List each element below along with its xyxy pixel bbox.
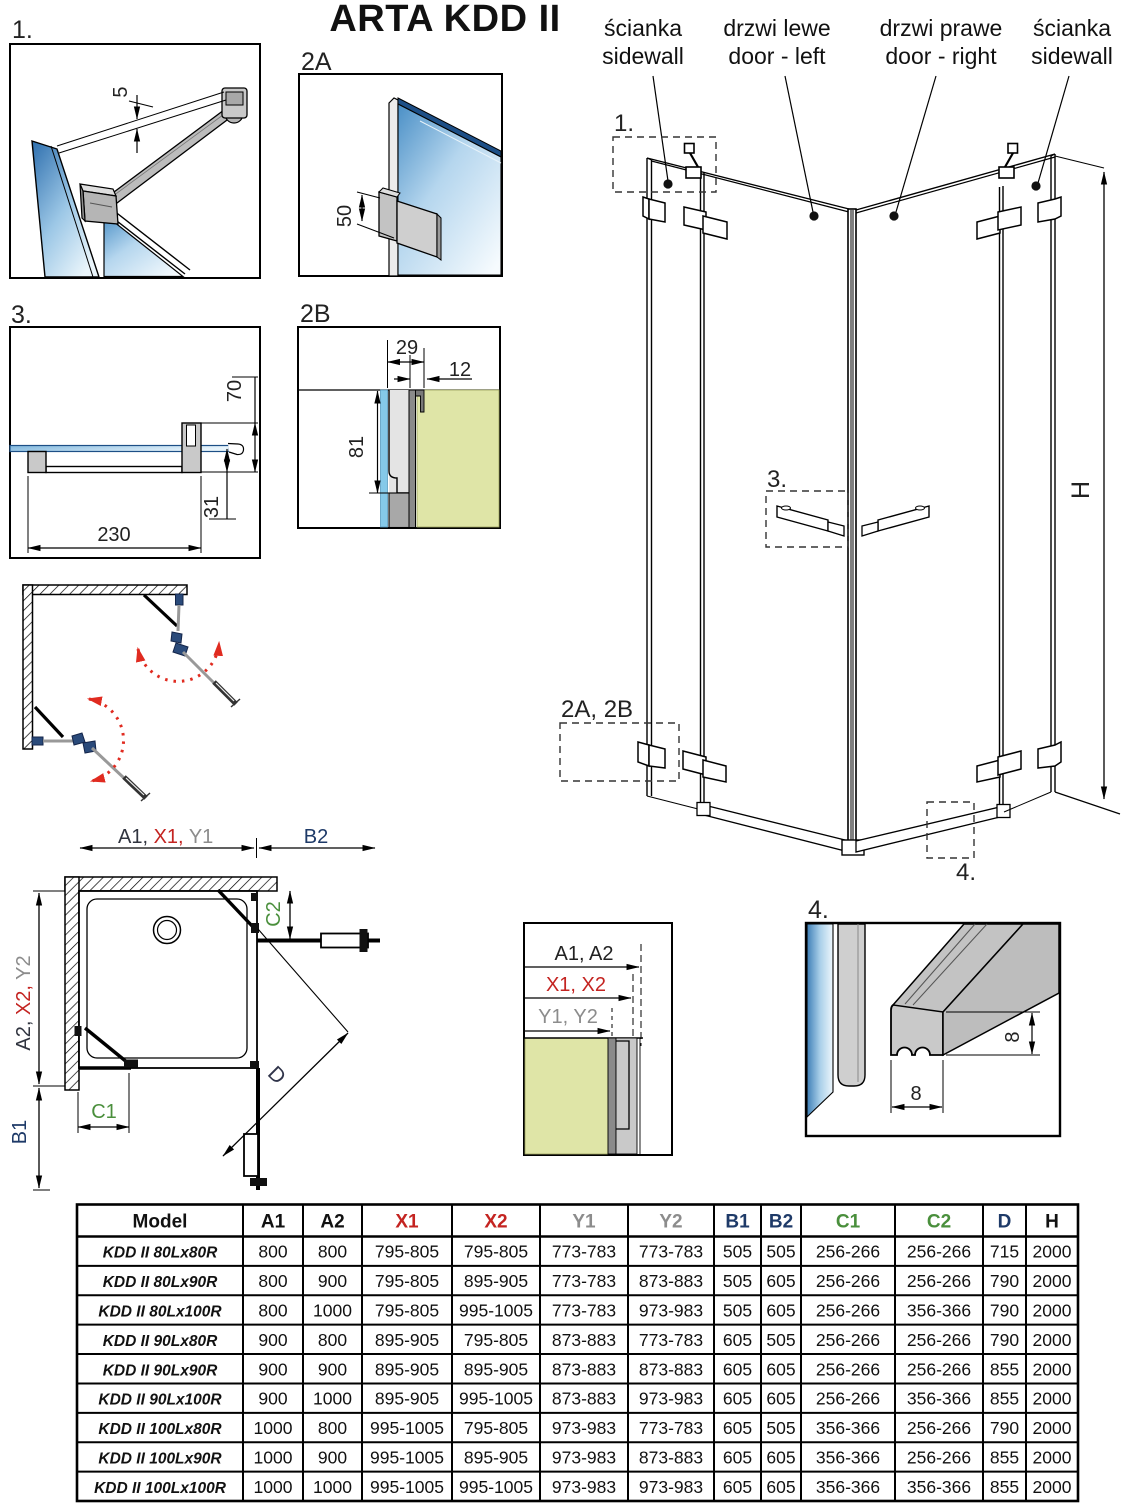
svg-text:1000: 1000 xyxy=(254,1477,293,1497)
svg-text:2A: 2A xyxy=(301,48,332,76)
svg-text:KDD II 80Lx100R: KDD II 80Lx100R xyxy=(98,1303,222,1320)
svg-text:Y1: Y1 xyxy=(572,1212,596,1233)
svg-text:973-983: 973-983 xyxy=(639,1300,703,1320)
svg-text:795-805: 795-805 xyxy=(375,1242,439,1262)
svg-text:sidewall: sidewall xyxy=(1031,43,1113,69)
svg-text:356-366: 356-366 xyxy=(816,1447,880,1467)
svg-text:81: 81 xyxy=(346,436,368,458)
svg-text:2000: 2000 xyxy=(1033,1359,1072,1379)
svg-text:H: H xyxy=(1045,1212,1059,1233)
svg-text:256-266: 256-266 xyxy=(816,1389,880,1409)
svg-text:H: H xyxy=(1067,481,1095,499)
svg-text:795-805: 795-805 xyxy=(375,1300,439,1320)
svg-text:X2: X2 xyxy=(484,1212,507,1233)
svg-text:B1: B1 xyxy=(9,1120,31,1144)
svg-text:KDD II 100Lx90R: KDD II 100Lx90R xyxy=(98,1450,222,1467)
svg-text:900: 900 xyxy=(258,1359,287,1379)
svg-text:605: 605 xyxy=(723,1359,752,1379)
svg-text:KDD II 100Lx80R: KDD II 100Lx80R xyxy=(98,1421,222,1438)
svg-text:drzwi lewe: drzwi lewe xyxy=(723,15,830,41)
svg-text:790: 790 xyxy=(990,1418,1019,1438)
svg-text:4.: 4. xyxy=(808,896,829,924)
svg-text:895-905: 895-905 xyxy=(375,1389,439,1409)
svg-text:873-883: 873-883 xyxy=(552,1389,616,1409)
svg-text:1000: 1000 xyxy=(313,1300,352,1320)
svg-text:8: 8 xyxy=(910,1083,921,1105)
svg-text:3.: 3. xyxy=(11,301,32,329)
svg-text:605: 605 xyxy=(723,1477,752,1497)
svg-text:795-805: 795-805 xyxy=(464,1330,528,1350)
svg-text:505: 505 xyxy=(723,1300,752,1320)
svg-text:256-266: 256-266 xyxy=(816,1359,880,1379)
svg-text:256-266: 256-266 xyxy=(816,1271,880,1291)
svg-text:356-366: 356-366 xyxy=(907,1477,971,1497)
svg-text:795-805: 795-805 xyxy=(464,1242,528,1262)
svg-text:2A, 2B: 2A, 2B xyxy=(561,696,633,723)
svg-text:ścianka: ścianka xyxy=(604,15,682,41)
svg-text:230: 230 xyxy=(97,524,130,546)
svg-text:256-266: 256-266 xyxy=(816,1242,880,1262)
svg-text:1.: 1. xyxy=(12,16,33,44)
svg-text:773-783: 773-783 xyxy=(639,1330,703,1350)
svg-text:256-266: 256-266 xyxy=(816,1300,880,1320)
svg-text:995-1005: 995-1005 xyxy=(370,1418,444,1438)
svg-text:2000: 2000 xyxy=(1033,1242,1072,1262)
svg-text:800: 800 xyxy=(318,1330,347,1350)
svg-text:800: 800 xyxy=(318,1418,347,1438)
svg-text:2000: 2000 xyxy=(1033,1271,1072,1291)
svg-text:995-1005: 995-1005 xyxy=(459,1389,533,1409)
svg-text:605: 605 xyxy=(766,1271,795,1291)
svg-text:B2: B2 xyxy=(304,826,328,848)
svg-text:995-1005: 995-1005 xyxy=(370,1447,444,1467)
svg-text:256-266: 256-266 xyxy=(907,1418,971,1438)
svg-text:790: 790 xyxy=(990,1271,1019,1291)
svg-text:773-783: 773-783 xyxy=(552,1300,616,1320)
svg-text:C2: C2 xyxy=(263,901,285,927)
svg-text:973-983: 973-983 xyxy=(552,1447,616,1467)
svg-text:895-905: 895-905 xyxy=(464,1359,528,1379)
svg-text:505: 505 xyxy=(766,1418,795,1438)
svg-text:8: 8 xyxy=(1002,1031,1024,1042)
svg-text:855: 855 xyxy=(990,1359,1019,1379)
svg-text:605: 605 xyxy=(723,1418,752,1438)
svg-text:B1: B1 xyxy=(725,1212,750,1233)
svg-text:795-805: 795-805 xyxy=(375,1271,439,1291)
svg-text:900: 900 xyxy=(258,1389,287,1409)
svg-text:256-266: 256-266 xyxy=(816,1330,880,1350)
svg-text:356-366: 356-366 xyxy=(816,1477,880,1497)
svg-text:800: 800 xyxy=(258,1242,287,1262)
svg-text:605: 605 xyxy=(723,1330,752,1350)
svg-text:Model: Model xyxy=(133,1212,188,1233)
svg-text:900: 900 xyxy=(258,1330,287,1350)
svg-text:Y2: Y2 xyxy=(659,1212,682,1233)
svg-text:D: D xyxy=(998,1212,1012,1233)
svg-text:505: 505 xyxy=(723,1242,752,1262)
svg-text:3.: 3. xyxy=(767,466,787,493)
svg-text:31: 31 xyxy=(201,496,223,518)
svg-text:2000: 2000 xyxy=(1033,1477,1072,1497)
svg-text:1000: 1000 xyxy=(254,1447,293,1467)
svg-text:A1: A1 xyxy=(261,1212,286,1233)
svg-text:790: 790 xyxy=(990,1300,1019,1320)
svg-text:A2: A2 xyxy=(320,1212,344,1233)
svg-text:C2: C2 xyxy=(927,1212,951,1233)
svg-text:790: 790 xyxy=(990,1330,1019,1350)
svg-text:900: 900 xyxy=(318,1359,347,1379)
svg-text:356-366: 356-366 xyxy=(816,1418,880,1438)
svg-text:773-783: 773-783 xyxy=(552,1271,616,1291)
svg-text:605: 605 xyxy=(766,1389,795,1409)
svg-text:1.: 1. xyxy=(614,110,634,137)
svg-text:973-983: 973-983 xyxy=(552,1418,616,1438)
svg-text:873-883: 873-883 xyxy=(639,1271,703,1291)
svg-text:855: 855 xyxy=(990,1477,1019,1497)
svg-text:800: 800 xyxy=(258,1300,287,1320)
svg-text:995-1005: 995-1005 xyxy=(370,1477,444,1497)
svg-text:C1: C1 xyxy=(91,1101,117,1123)
svg-text:C1: C1 xyxy=(836,1212,861,1233)
svg-text:873-883: 873-883 xyxy=(639,1447,703,1467)
svg-text:773-783: 773-783 xyxy=(639,1242,703,1262)
svg-text:KDD II 90Lx80R: KDD II 90Lx80R xyxy=(103,1333,218,1350)
svg-text:KDD II 80Lx90R: KDD II 80Lx90R xyxy=(103,1274,218,1291)
svg-text:sidewall: sidewall xyxy=(602,43,684,69)
svg-text:1000: 1000 xyxy=(254,1418,293,1438)
svg-text:973-983: 973-983 xyxy=(639,1477,703,1497)
svg-text:605: 605 xyxy=(766,1477,795,1497)
svg-text:605: 605 xyxy=(766,1359,795,1379)
svg-text:2000: 2000 xyxy=(1033,1418,1072,1438)
svg-text:2000: 2000 xyxy=(1033,1300,1072,1320)
svg-text:873-883: 873-883 xyxy=(552,1359,616,1379)
svg-text:873-883: 873-883 xyxy=(552,1330,616,1350)
svg-text:895-905: 895-905 xyxy=(464,1447,528,1467)
svg-text:2000: 2000 xyxy=(1033,1389,1072,1409)
svg-text:605: 605 xyxy=(723,1447,752,1467)
svg-text:KDD II 80Lx80R: KDD II 80Lx80R xyxy=(103,1245,218,1262)
svg-text:ARTA KDD II: ARTA KDD II xyxy=(329,0,560,40)
svg-text:855: 855 xyxy=(990,1389,1019,1409)
svg-text:KDD II 90Lx90R: KDD II 90Lx90R xyxy=(103,1362,218,1379)
svg-text:256-266: 256-266 xyxy=(907,1447,971,1467)
svg-text:256-266: 256-266 xyxy=(907,1330,971,1350)
svg-text:ścianka: ścianka xyxy=(1033,15,1111,41)
svg-text:505: 505 xyxy=(766,1330,795,1350)
svg-text:605: 605 xyxy=(723,1389,752,1409)
svg-text:X1: X1 xyxy=(395,1212,419,1233)
svg-text:773-783: 773-783 xyxy=(639,1418,703,1438)
svg-text:605: 605 xyxy=(766,1447,795,1467)
svg-text:A1, A2: A1, A2 xyxy=(555,943,614,965)
svg-text:973-983: 973-983 xyxy=(552,1477,616,1497)
svg-text:256-266: 256-266 xyxy=(907,1271,971,1291)
svg-text:895-905: 895-905 xyxy=(375,1330,439,1350)
svg-text:505: 505 xyxy=(723,1271,752,1291)
svg-text:KDD II 90Lx100R: KDD II 90Lx100R xyxy=(98,1392,222,1409)
svg-text:800: 800 xyxy=(318,1242,347,1262)
svg-text:973-983: 973-983 xyxy=(639,1389,703,1409)
svg-text:1000: 1000 xyxy=(313,1389,352,1409)
svg-text:50: 50 xyxy=(334,205,356,227)
svg-text:715: 715 xyxy=(990,1242,1019,1262)
svg-text:795-805: 795-805 xyxy=(464,1418,528,1438)
svg-text:356-366: 356-366 xyxy=(907,1300,971,1320)
svg-text:Y1, Y2: Y1, Y2 xyxy=(538,1006,598,1028)
svg-text:895-905: 895-905 xyxy=(464,1271,528,1291)
svg-text:873-883: 873-883 xyxy=(639,1359,703,1379)
svg-text:1000: 1000 xyxy=(313,1477,352,1497)
svg-text:12: 12 xyxy=(449,359,471,381)
svg-text:900: 900 xyxy=(318,1271,347,1291)
svg-text:995-1005: 995-1005 xyxy=(459,1300,533,1320)
svg-text:KDD II 100Lx100R: KDD II 100Lx100R xyxy=(94,1480,227,1497)
svg-text:356-366: 356-366 xyxy=(907,1389,971,1409)
svg-text:door - right: door - right xyxy=(885,43,997,69)
svg-text:B2: B2 xyxy=(769,1212,793,1233)
svg-text:256-266: 256-266 xyxy=(907,1359,971,1379)
svg-text:A2, X2, Y2: A2, X2, Y2 xyxy=(13,955,35,1050)
svg-text:605: 605 xyxy=(766,1300,795,1320)
svg-text:drzwi prawe: drzwi prawe xyxy=(880,15,1003,41)
svg-text:2B: 2B xyxy=(300,300,331,328)
svg-text:855: 855 xyxy=(990,1447,1019,1467)
svg-text:5: 5 xyxy=(110,86,132,97)
svg-text:256-266: 256-266 xyxy=(907,1242,971,1262)
svg-text:800: 800 xyxy=(258,1271,287,1291)
svg-text:door - left: door - left xyxy=(728,43,826,69)
svg-text:A1, X1, Y1: A1, X1, Y1 xyxy=(118,826,213,848)
svg-text:995-1005: 995-1005 xyxy=(459,1477,533,1497)
svg-text:70: 70 xyxy=(224,380,246,402)
svg-text:X1, X2: X1, X2 xyxy=(546,974,606,996)
svg-text:2000: 2000 xyxy=(1033,1447,1072,1467)
svg-text:2000: 2000 xyxy=(1033,1330,1072,1350)
svg-text:773-783: 773-783 xyxy=(552,1242,616,1262)
svg-text:895-905: 895-905 xyxy=(375,1359,439,1379)
svg-text:505: 505 xyxy=(766,1242,795,1262)
svg-text:29: 29 xyxy=(396,337,418,359)
svg-text:900: 900 xyxy=(318,1447,347,1467)
svg-text:4.: 4. xyxy=(956,859,976,886)
